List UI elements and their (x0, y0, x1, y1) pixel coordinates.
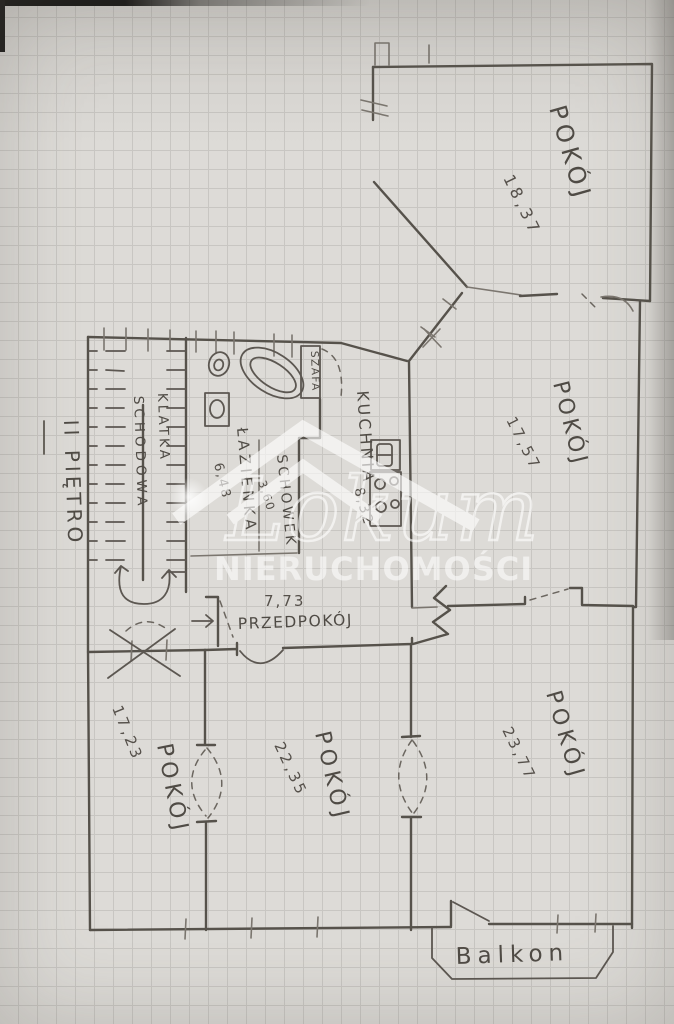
x-mark (108, 629, 180, 678)
door-bottom-mid-swing (240, 650, 283, 663)
label-staircase-2: SCHODOWA (130, 396, 150, 510)
wall-divider-left (197, 650, 216, 930)
wall-divider-right (402, 644, 421, 930)
wardrobe-door-arc (322, 349, 342, 397)
wall-hatches-top (104, 328, 292, 357)
entrance-arrow (192, 615, 213, 627)
wall-18-bottom-connector (467, 287, 521, 295)
label-room-bottom-left: POKÓJ (151, 741, 194, 837)
toilet (206, 349, 232, 378)
area-room-top-right: 18,37 (499, 171, 545, 238)
staircase-treads-left (89, 351, 125, 560)
label-wardrobe: SZAFA (308, 351, 321, 392)
opening-left-arcs (192, 748, 222, 818)
area-room-bottom-mid: 22,35 (270, 739, 311, 799)
x-mark-arc (126, 622, 168, 631)
washbasin-bowl (210, 400, 224, 418)
label-floor: II PIĘTRO (59, 419, 87, 546)
wall-right-mid (632, 301, 640, 928)
label-room-top-right: POKÓJ (543, 101, 599, 204)
watermark-subtitle: NIERUCHOMOŚCI (214, 549, 533, 588)
opening-right-arcs (399, 740, 427, 814)
entrance-door-leaf (220, 601, 233, 637)
area-room-bottom-right: 23,77 (498, 724, 540, 784)
floorplan-photo: POKÓJ 18,37 POKÓJ 17,57 KUCHNIA 8,32 ŁAZ… (0, 0, 674, 1024)
area-room-bottom-left: 17,23 (108, 703, 146, 763)
chimney-ticks (375, 43, 429, 65)
label-room-bottom-right: POKÓJ (540, 687, 591, 783)
label-balcony: Balkon (455, 940, 569, 970)
wall-bottom-outer (90, 924, 632, 930)
hall-right-stub (412, 607, 437, 608)
bathtub-inner (245, 351, 302, 399)
label-room-mid-right: POKÓJ (547, 378, 593, 469)
wall-kitchen-diagonal-door (409, 293, 462, 361)
floorplan-drawing: POKÓJ 18,37 POKÓJ 17,57 KUCHNIA 8,32 ŁAZ… (0, 0, 674, 1024)
washbasin (205, 393, 229, 426)
zigzag-wall (413, 586, 450, 644)
label-room-bottom-mid: POKÓJ (309, 729, 355, 825)
label-hallway: PRZEDPOKÓJ (237, 610, 353, 633)
wall-18-hatch (361, 100, 388, 116)
door-18-open-leaf (582, 294, 597, 309)
wall-18-diagonal (374, 182, 467, 287)
wall-left-outer (88, 337, 90, 930)
wall-bottom-mid-top (205, 638, 412, 655)
door-bottom-right-leaf (530, 589, 568, 600)
wall-bottom-right-top (448, 588, 633, 606)
toilet-inner (213, 358, 225, 371)
watermark-brand: Lokum (224, 458, 541, 561)
label-staircase-1: KLATKA (154, 393, 172, 462)
staircase-turn-arrow (115, 566, 176, 604)
balcony-door-leaf (453, 902, 489, 921)
area-hallway: 7,73 (264, 592, 305, 610)
